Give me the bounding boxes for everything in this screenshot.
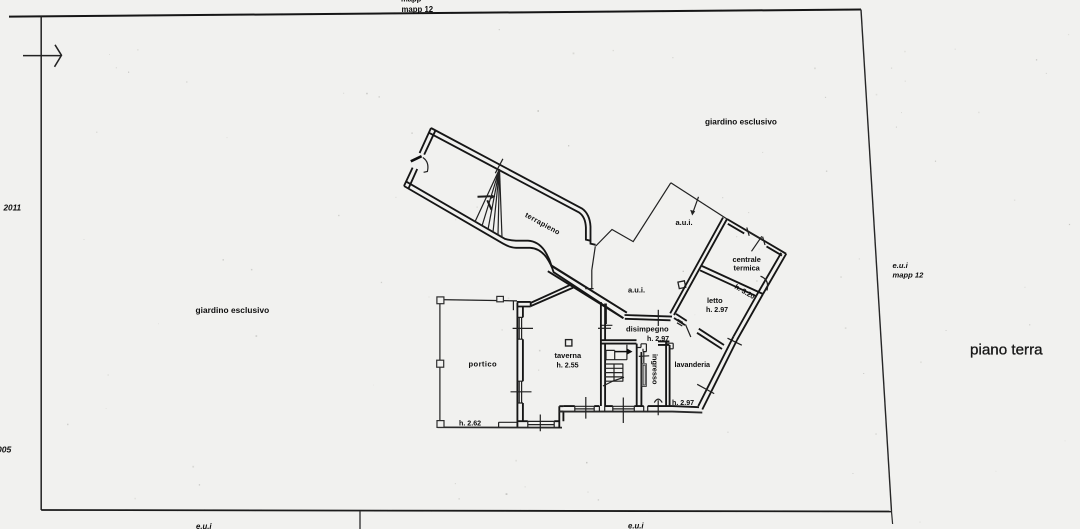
- svg-text:giardino esclusivo: giardino esclusivo: [705, 118, 777, 127]
- svg-text:e.u.i: e.u.i: [628, 522, 644, 529]
- svg-text:letto: letto: [707, 296, 723, 305]
- svg-text:portico: portico: [469, 359, 498, 368]
- svg-text:2011: 2011: [3, 204, 22, 213]
- svg-text:disimpegno: disimpegno: [626, 324, 669, 333]
- svg-text:terrapieno: terrapieno: [524, 210, 562, 237]
- svg-text:h. 2.97: h. 2.97: [706, 306, 728, 314]
- svg-text:piano terra: piano terra: [970, 342, 1043, 359]
- svg-text:mapp 12: mapp 12: [402, 5, 434, 14]
- svg-text:ingresso: ingresso: [651, 354, 660, 385]
- svg-text:taverna: taverna: [555, 351, 583, 360]
- svg-text:lavanderia: lavanderia: [675, 360, 712, 369]
- svg-text:giardino esclusivo: giardino esclusivo: [196, 305, 270, 315]
- svg-text:termica: termica: [734, 263, 761, 272]
- svg-text:h. 2.55: h. 2.55: [557, 362, 579, 370]
- svg-text:e.u.i: e.u.i: [196, 522, 212, 529]
- svg-text:a.u.i.: a.u.i.: [676, 218, 693, 227]
- svg-text:e.u.i: e.u.i: [893, 261, 909, 270]
- svg-text:mapp 12: mapp 12: [893, 271, 925, 280]
- svg-text:a.u.i.: a.u.i.: [628, 286, 645, 295]
- svg-text:h. 2.62: h. 2.62: [459, 419, 481, 427]
- svg-text:mapp: mapp: [401, 0, 422, 3]
- svg-text:005: 005: [0, 445, 12, 455]
